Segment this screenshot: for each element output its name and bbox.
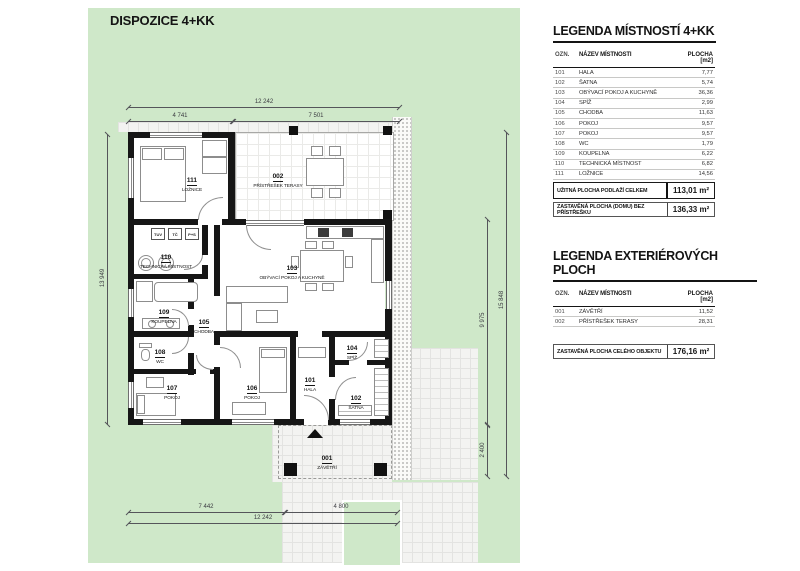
kitchen-counter-symbol (371, 239, 384, 283)
dim-right-lower: 2 400 (480, 442, 486, 457)
legend-exterior-table: OZN. NÁZEV MÍSTNOSTI PLOCHA [m2] 001ZÁVĚ… (553, 289, 715, 327)
room-label-zavetri: 001ZÁVĚTŘÍ (300, 448, 354, 471)
ps-unit: P+S (185, 228, 199, 240)
room-label-technicka: 110TECHNICKÁ MÍSTNOST (134, 247, 198, 270)
legend-rooms-header: OZN. NÁZEV MÍSTNOSTI PLOCHA [m2] (553, 50, 715, 68)
paving-right-patch (410, 348, 478, 480)
sofa-symbol (226, 286, 288, 303)
room-label-koupelna: 109KOUPELNA (140, 302, 188, 325)
table-row: 106POKOJ9,57 (553, 119, 715, 129)
summary-usable-area: UŽITNÁ PLOCHA PODLAŽÍ CELKEM 113,01 m² (553, 182, 715, 199)
legend-panel: LEGENDA MÍSTNOSTÍ 4+KK OZN. NÁZEV MÍSTNO… (545, 22, 757, 359)
chair-symbol (322, 241, 334, 249)
room-label-spiz: 104SPÍŽ (336, 338, 368, 361)
closet-symbol (298, 347, 326, 358)
dim-top-left: 4 741 (172, 113, 187, 119)
pillow-symbol (142, 148, 162, 160)
paving-top-strip (118, 122, 392, 132)
table-row: 111LOŽNICE14,56 (553, 170, 715, 180)
table-row: 108WC1,79 (553, 139, 715, 149)
table-row: 101HALA7,77 (553, 68, 715, 78)
dim-right-inner: 9 975 (480, 312, 486, 327)
chair-symbol (311, 188, 323, 198)
legend-exterior-title: LEGENDA EXTERIÉROVÝCH PLOCH (553, 249, 757, 282)
table-row: 104SPÍŽ2,99 (553, 99, 715, 109)
pillow-symbol (137, 395, 145, 414)
pillow-symbol (261, 349, 285, 358)
room-label-loznice: 111LOŽNICE (170, 170, 214, 193)
table-row: 107POKOJ9,57 (553, 129, 715, 139)
coffee-table-symbol (256, 310, 278, 323)
terrace-post (383, 126, 392, 135)
legend-rooms-title: LEGENDA MÍSTNOSTÍ 4+KK (553, 24, 716, 43)
dim-left: 13 949 (100, 269, 106, 287)
table-row: 103OBÝVACÍ POKOJ A KUCHYNĚ36,36 (553, 88, 715, 98)
chair-symbol (329, 146, 341, 156)
summary-builtup-total: ZASTAVĚNÁ PLOCHA CELÉHO OBJEKTU 176,16 m… (553, 344, 715, 359)
table-row: 110TECHNICKÁ MÍSTNOST6,82 (553, 160, 715, 170)
room-label-pokoj-106: 106POKOJ (230, 378, 274, 401)
room-label-pokoj-107: 107POKOJ (150, 378, 194, 401)
chair-symbol (322, 283, 334, 291)
chair-symbol (305, 241, 317, 249)
bathtub-symbol (154, 282, 198, 302)
room-label-terasa: 002PŘÍSTŘEŠEK TERASY (244, 166, 312, 189)
legend-rooms-table: OZN. NÁZEV MÍSTNOSTI PLOCHA [m2] 101HALA… (553, 50, 715, 180)
chair-symbol (345, 256, 353, 268)
terrace-post (289, 126, 298, 135)
chair-symbol (329, 188, 341, 198)
dim-bottom-left: 7 442 (198, 504, 213, 510)
dim-bottom-right: 4 800 (333, 504, 348, 510)
shower-symbol (136, 281, 153, 302)
gravel-drain-band (392, 117, 412, 480)
table-row: 001ZÁVĚTŘÍ11,52 (553, 307, 715, 317)
pillow-symbol (164, 148, 184, 160)
sofa-symbol (226, 303, 242, 331)
table-row: 109KOUPELNA6,22 (553, 150, 715, 160)
dim-right-outer: 15 848 (499, 291, 505, 309)
floor-plan-page: DISPOZICE 4+KK (0, 0, 800, 571)
page-title: DISPOZICE 4+KK (110, 13, 214, 28)
entrance-arrow-icon (307, 429, 323, 438)
wardrobe-symbol (202, 140, 227, 157)
room-label-chodba: 105CHODBA (184, 312, 224, 335)
room-label-wc: 108WC (146, 342, 174, 365)
legend-exterior-header: OZN. NÁZEV MÍSTNOSTI PLOCHA [m2] (553, 289, 715, 307)
table-row: 105CHODBA11,63 (553, 109, 715, 119)
summary-builtup-house: ZASTAVĚNÁ PLOCHA (DOMU) BEZ PŘÍSTŘEŠKU 1… (553, 202, 715, 217)
chair-symbol (311, 146, 323, 156)
room-label-hala: 101HALA (294, 370, 326, 393)
terrace-post (383, 210, 392, 219)
table-row: 102ŠATNA5,74 (553, 78, 715, 88)
tc-unit: TČ (168, 228, 182, 240)
chair-symbol (305, 283, 317, 291)
tuv-unit: TUV (151, 228, 165, 240)
room-label-satna: 102ŠATNA (334, 388, 378, 411)
desk-symbol (232, 402, 266, 415)
sink-symbol (318, 228, 329, 237)
garden-bed-patch (342, 500, 402, 567)
dim-top-right: 7 501 (308, 113, 323, 119)
room-label-obyvaci: 103OBÝVACÍ POKOJ A KUCHYNĚ (252, 258, 332, 281)
shelving-symbol (374, 339, 389, 358)
table-row: 002PŘÍSTŘEŠEK TERASY28,31 (553, 317, 715, 327)
dim-top-total: 12 242 (255, 99, 273, 105)
dim-bottom-total: 12 242 (254, 515, 272, 521)
stove-symbol (342, 228, 353, 237)
